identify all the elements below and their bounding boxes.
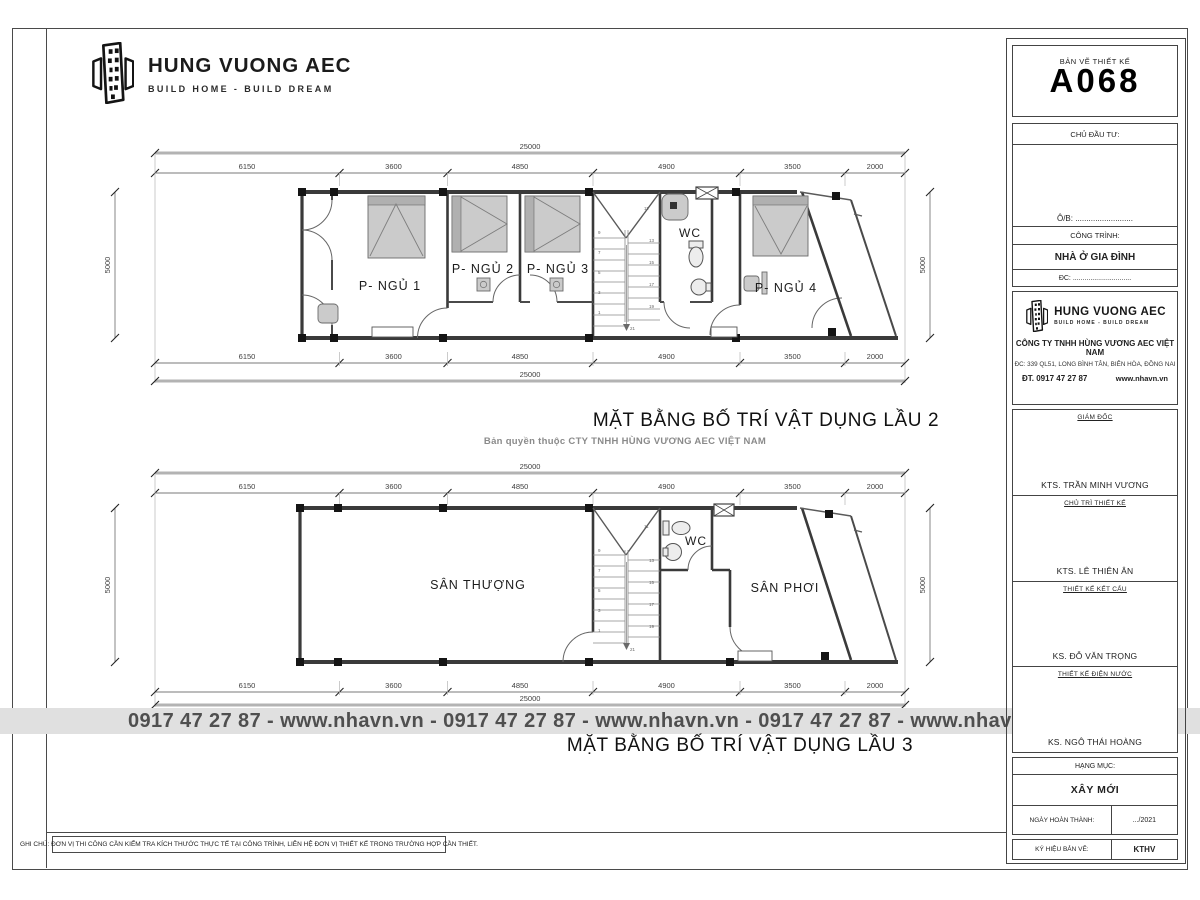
project-name: NHÀ Ở GIA ĐÌNH <box>1013 245 1177 269</box>
floor3-plan-drawing: 25000 6150 3600 4850 4900 3500 2000 5000… <box>50 455 950 725</box>
project-label: CÔNG TRÌNH: <box>1013 227 1177 245</box>
drawing-code-label: KÝ HIỆU BẢN VẼ: <box>1013 840 1112 859</box>
client-label: CHỦ ĐẦU TƯ: <box>1013 124 1177 145</box>
stair-num: 5 <box>598 588 601 593</box>
dim-seg: 6150 <box>239 162 256 171</box>
stair-num: 15 <box>649 260 655 265</box>
floor2-plan-drawing: 25000 6150 3600 4850 4900 3500 2000 5000… <box>50 130 950 420</box>
company-logo: HUNG VUONG AEC BUILD HOME - BUILD DREAM <box>88 42 351 104</box>
vent-icon <box>696 187 718 199</box>
title-block: BẢN VẼ THIẾT KẾ A068 CHỦ ĐẦU TƯ: Ô/B: ..… <box>1006 38 1186 864</box>
bed-icon <box>452 196 507 252</box>
room-label-bed2: P- NGỦ 2 <box>452 261 514 276</box>
dim-side: 5000 <box>103 257 112 274</box>
room-label-wc: WC <box>679 226 701 240</box>
stair-num: 19 <box>649 304 655 309</box>
signature-lead-designer: CHỦ TRÌ THIẾT KẾ KTS. LÊ THIÊN ÂN <box>1013 496 1177 582</box>
project-address-line: ĐC: .............................. <box>1013 269 1177 286</box>
dim-seg: 2000 <box>867 162 884 171</box>
signature-name: KS. NGÔ THÁI HOÀNG <box>1013 737 1177 752</box>
stair-num: 21 <box>630 326 636 331</box>
category-value: XÂY MỚI <box>1013 775 1177 806</box>
wc-fixtures-floor2 <box>662 187 718 295</box>
threshold <box>372 327 413 337</box>
company-address: ĐC: 339 QL51, LONG BÌNH TÂN, BIÊN HÒA, Đ… <box>1013 361 1177 368</box>
dim-side: 5000 <box>918 577 927 594</box>
dim-seg: 4850 <box>512 482 529 491</box>
dim-seg: 3500 <box>784 162 801 171</box>
logo-tagline: BUILD HOME - BUILD DREAM <box>148 84 351 94</box>
stair-num: 15 <box>649 580 655 585</box>
company-logo-name: HUNG VUONG AEC <box>1054 306 1166 318</box>
stair-num: 17 <box>649 282 655 287</box>
sink-icon <box>691 279 711 295</box>
dim-seg: 6150 <box>239 482 256 491</box>
dim-seg: 4850 <box>512 352 529 361</box>
dim-right-floor2: 5000 <box>918 188 934 342</box>
drawing-number-box: BẢN VẼ THIẾT KẾ A068 <box>1012 45 1178 117</box>
threshold <box>711 327 737 337</box>
stair-num: 7 <box>598 250 601 255</box>
dim-total-label: 25000 <box>520 462 541 471</box>
stair-num: 11 <box>644 206 649 211</box>
dim-left-floor2: 5000 <box>103 188 119 342</box>
company-logo-tagline: BUILD HOME - BUILD DREAM <box>1054 320 1166 326</box>
signature-role: THIẾT KẾ ĐIỆN NƯỚC <box>1013 667 1177 678</box>
dim-seg: 4850 <box>512 162 529 171</box>
shower-drain <box>670 202 677 209</box>
dim-seg: 4900 <box>658 352 675 361</box>
stair-num: 13 <box>649 558 655 563</box>
stair-num: 3 <box>598 608 601 613</box>
stair-num: 3 <box>598 290 601 295</box>
nightstand-icon <box>477 278 490 291</box>
dim-seg: 4900 <box>658 162 675 171</box>
stair-num: 1 <box>598 310 601 315</box>
dim-seg: 3600 <box>385 482 402 491</box>
nightstand-icon <box>550 278 563 291</box>
signature-role: CHỦ TRÌ THIẾT KẾ <box>1013 496 1177 507</box>
dim-seg: 3600 <box>385 681 402 690</box>
signature-structural: THIẾT KẾ KẾT CẤU KS. ĐỖ VĂN TRỌNG <box>1013 582 1177 668</box>
dim-bottom-total-floor2: 25000 <box>151 370 909 385</box>
room-label-terrace: SÂN THƯỢNG <box>430 577 526 592</box>
stair-num: 11 <box>644 524 649 529</box>
sink-icon <box>663 544 682 561</box>
completion-date-label: NGÀY HOÀN THÀNH: <box>1013 806 1112 834</box>
stair-num: 13 <box>649 238 655 243</box>
company-website: www.nhavn.vn <box>1116 374 1168 383</box>
bed-icon <box>525 196 580 252</box>
dim-seg: 3500 <box>784 352 801 361</box>
room-label-bed1: P- NGỦ 1 <box>359 278 421 293</box>
stair-num: 17 <box>649 602 655 607</box>
dim-seg: 4850 <box>512 681 529 690</box>
logo-name: HUNG VUONG AEC <box>148 54 351 78</box>
completion-date-value: .../2021 <box>1112 806 1177 834</box>
signatures-box: GIÁM ĐỐC KTS. TRẦN MINH VƯƠNG CHỦ TRÌ TH… <box>1012 409 1178 753</box>
dim-seg: 3600 <box>385 352 402 361</box>
signature-director: GIÁM ĐỐC KTS. TRẦN MINH VƯƠNG <box>1013 410 1177 496</box>
dim-total-label: 25000 <box>520 142 541 151</box>
room-label-bed4: P- NGỦ 4 <box>755 280 817 295</box>
toilet-icon <box>663 521 690 535</box>
stair-num: 9 <box>598 230 601 235</box>
dim-seg: 4900 <box>658 681 675 690</box>
dim-total-label: 25000 <box>520 694 541 703</box>
staircase-floor2: 9 7 5 3 1 11 13 15 17 19 21 <box>593 192 660 331</box>
signature-role: THIẾT KẾ KẾT CẤU <box>1013 582 1177 593</box>
dim-top-total-floor2: 25000 <box>151 142 909 157</box>
toilet-icon <box>689 241 703 267</box>
room-label-bed3: P- NGỦ 3 <box>527 261 589 276</box>
dim-seg: 2000 <box>867 681 884 690</box>
sheet-inner-border <box>46 28 47 868</box>
bed-icon <box>368 196 425 258</box>
signature-name: KTS. TRẦN MINH VƯƠNG <box>1013 480 1177 495</box>
dim-seg: 2000 <box>867 352 884 361</box>
dim-right-floor3: 5000 <box>918 504 934 666</box>
drawing-code-box: KÝ HIỆU BẢN VẼ: KTHV <box>1012 839 1178 860</box>
category-label: HẠNG MỤC: <box>1013 758 1177 775</box>
dim-seg: 4900 <box>658 482 675 491</box>
room-label-wc: WC <box>685 534 707 548</box>
drawing-number: A068 <box>1013 62 1177 100</box>
stair-num: 19 <box>649 624 655 629</box>
company-phone: ĐT. 0917 47 27 87 <box>1022 374 1087 383</box>
company-box: HUNG VUONG AEC BUILD HOME - BUILD DREAM … <box>1012 291 1178 405</box>
dim-seg: 3500 <box>784 681 801 690</box>
staircase-floor3: 9 7 5 3 1 11 13 15 17 19 21 <box>593 508 660 652</box>
dim-left-floor3: 5000 <box>103 504 119 666</box>
dim-seg: 2000 <box>867 482 884 491</box>
drawing-code-value: KTHV <box>1112 840 1177 859</box>
room-label-drying: SÂN PHƠI <box>751 580 820 595</box>
bed-icon <box>753 196 808 256</box>
floor2-plan-title: MẶT BẰNG BỐ TRÍ VẬT DỤNG LẦU 2 <box>546 410 986 432</box>
dim-side: 5000 <box>918 257 927 274</box>
signature-name: KS. ĐỖ VĂN TRỌNG <box>1013 651 1177 666</box>
signature-mep: THIẾT KẾ ĐIỆN NƯỚC KS. NGÔ THÁI HOÀNG <box>1013 667 1177 752</box>
client-box: CHỦ ĐẦU TƯ: Ô/B: .......................… <box>1012 123 1178 287</box>
client-ob-line: Ô/B: .......................... <box>1013 210 1177 227</box>
signature-name: KTS. LÊ THIÊN ÂN <box>1013 566 1177 581</box>
dim-total-label: 25000 <box>520 370 541 379</box>
dim-side: 5000 <box>103 577 112 594</box>
dim-seg: 6150 <box>239 681 256 690</box>
dim-bottom-total-floor3: 25000 <box>151 694 909 709</box>
stair-num: 7 <box>598 568 601 573</box>
threshold <box>738 651 772 661</box>
dim-bottom-segments-floor2: 6150 3600 4850 4900 3500 2000 <box>151 352 909 367</box>
dim-seg: 6150 <box>239 352 256 361</box>
stair-num: 9 <box>598 548 601 553</box>
building-logo-icon-small <box>1024 300 1048 332</box>
chair-icon <box>318 304 338 323</box>
stair-num: 21 <box>630 647 636 652</box>
footer-note: GHI CHÚ: ĐƠN VỊ THI CÔNG CẦN KIỂM TRA KÍ… <box>52 836 446 853</box>
dim-seg: 3600 <box>385 162 402 171</box>
dim-top-total-floor3: 25000 <box>151 462 909 477</box>
category-box: HẠNG MỤC: XÂY MỚI NGÀY HOÀN THÀNH: .../2… <box>1012 757 1178 835</box>
floor2-plan-copyright: Bản quyền thuộc CTY TNHH HÙNG VƯƠNG AEC … <box>420 436 830 447</box>
signature-role: GIÁM ĐỐC <box>1013 410 1177 421</box>
building-logo-icon <box>88 42 134 104</box>
dim-seg: 3500 <box>784 482 801 491</box>
company-name: CÔNG TY TNHH HÙNG VƯƠNG AEC VIỆT NAM <box>1013 339 1177 357</box>
floor3-plan-title: MẶT BẰNG BỐ TRÍ VẬT DỤNG LẦU 3 <box>530 735 950 757</box>
vent-icon <box>714 504 734 516</box>
